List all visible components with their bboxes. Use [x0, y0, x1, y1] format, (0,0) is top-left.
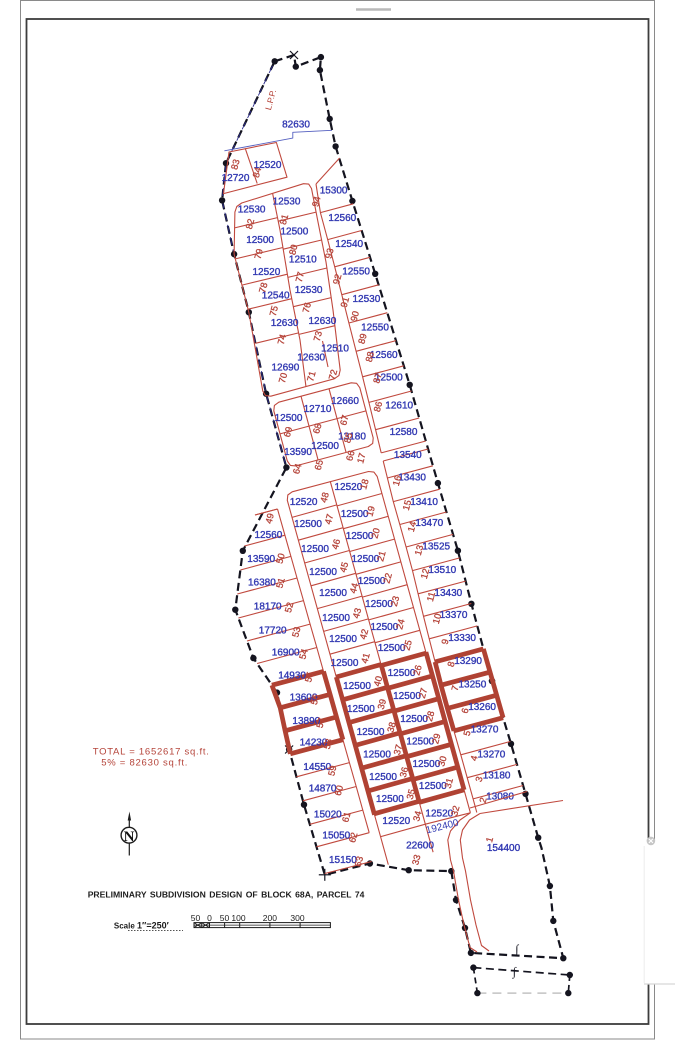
svg-text:15300: 15300 [320, 186, 348, 197]
svg-text:5% = 82630 sq.ft.: 5% = 82630 sq.ft. [101, 757, 188, 768]
svg-text:18170: 18170 [254, 602, 282, 613]
svg-text:12710: 12710 [304, 404, 332, 415]
svg-text:12500: 12500 [369, 772, 397, 783]
svg-text:50: 50 [220, 913, 230, 923]
svg-text:14930: 14930 [278, 671, 306, 682]
svg-text:1″=250′: 1″=250′ [137, 921, 169, 931]
svg-text:100: 100 [231, 913, 245, 923]
svg-text:13290: 13290 [454, 656, 482, 667]
svg-text:22600: 22600 [406, 840, 434, 851]
svg-text:12500: 12500 [311, 441, 339, 452]
svg-text:12520: 12520 [382, 816, 410, 827]
svg-text:Scale: Scale [114, 922, 135, 931]
svg-text:13410: 13410 [410, 497, 438, 508]
svg-text:12520: 12520 [252, 267, 280, 278]
svg-text:82630: 82630 [282, 120, 310, 131]
svg-text:13260: 13260 [468, 702, 496, 713]
svg-text:∫: ∫ [514, 942, 519, 956]
svg-text:12530: 12530 [352, 294, 380, 305]
svg-text:12500: 12500 [301, 544, 329, 555]
svg-text:12500: 12500 [294, 519, 322, 530]
svg-text:N: N [124, 829, 135, 845]
svg-text:13370: 13370 [440, 610, 468, 621]
svg-text:12550: 12550 [361, 322, 389, 333]
svg-text:12550: 12550 [342, 267, 370, 278]
svg-text:12580: 12580 [390, 427, 418, 438]
svg-text:13470: 13470 [415, 518, 443, 529]
svg-text:16380: 16380 [248, 577, 276, 588]
svg-text:0: 0 [207, 913, 212, 923]
svg-text:13270: 13270 [471, 724, 499, 735]
svg-text:12500: 12500 [280, 227, 308, 238]
svg-text:50: 50 [191, 913, 201, 923]
svg-text:13180: 13180 [483, 770, 511, 781]
svg-text:154400: 154400 [487, 843, 521, 854]
svg-text:13510: 13510 [428, 565, 456, 576]
svg-text:13590: 13590 [284, 447, 312, 458]
svg-text:12560: 12560 [254, 530, 282, 541]
svg-text:12530: 12530 [273, 197, 301, 208]
svg-text:13080: 13080 [486, 792, 514, 803]
svg-text:13270: 13270 [477, 750, 505, 761]
svg-text:PRELIMINARY SUBDIVISION DESIGN: PRELIMINARY SUBDIVISION DESIGN OF BLOCK … [88, 889, 365, 899]
svg-text:12500: 12500 [357, 727, 385, 738]
svg-text:13250: 13250 [458, 680, 486, 691]
svg-text:12630: 12630 [297, 353, 325, 364]
svg-text:300: 300 [290, 913, 304, 923]
svg-text:15020: 15020 [314, 810, 342, 821]
svg-text:12500: 12500 [309, 567, 337, 578]
svg-text:13430: 13430 [434, 588, 462, 599]
svg-text:12540: 12540 [335, 239, 363, 250]
svg-text:15050: 15050 [322, 830, 350, 841]
svg-text:12510: 12510 [289, 255, 317, 266]
svg-text:12630: 12630 [308, 316, 336, 327]
svg-text:13590: 13590 [247, 554, 275, 565]
svg-text:12690: 12690 [271, 362, 299, 373]
svg-text:13540: 13540 [394, 450, 422, 461]
svg-text:12520: 12520 [290, 497, 318, 508]
svg-text:12500: 12500 [275, 413, 303, 424]
svg-text:12500: 12500 [319, 588, 347, 599]
svg-text:12500: 12500 [331, 658, 359, 669]
svg-text:12500: 12500 [329, 634, 357, 645]
svg-text:12510: 12510 [321, 343, 349, 354]
svg-text:13330: 13330 [448, 633, 476, 644]
svg-text:13525: 13525 [422, 542, 450, 553]
svg-text:12500: 12500 [246, 235, 274, 246]
svg-text:TOTAL = 1652617 sq.ft.: TOTAL = 1652617 sq.ft. [93, 746, 210, 757]
svg-text:12560: 12560 [328, 213, 356, 224]
svg-text:12720: 12720 [222, 173, 250, 184]
svg-text:12530: 12530 [238, 205, 266, 216]
svg-text:12500: 12500 [363, 750, 391, 761]
svg-text:∫: ∫ [512, 965, 517, 979]
svg-text:12610: 12610 [385, 400, 413, 411]
svg-text:12630: 12630 [271, 318, 299, 329]
svg-text:12530: 12530 [295, 285, 323, 296]
svg-text:12500: 12500 [343, 681, 371, 692]
svg-text:16900: 16900 [272, 648, 300, 659]
svg-text:12660: 12660 [331, 396, 359, 407]
svg-text:12500: 12500 [376, 794, 404, 805]
svg-text:12500: 12500 [322, 613, 350, 624]
svg-text:200: 200 [263, 913, 277, 923]
svg-text:12500: 12500 [347, 704, 375, 715]
svg-text:17720: 17720 [259, 626, 287, 637]
